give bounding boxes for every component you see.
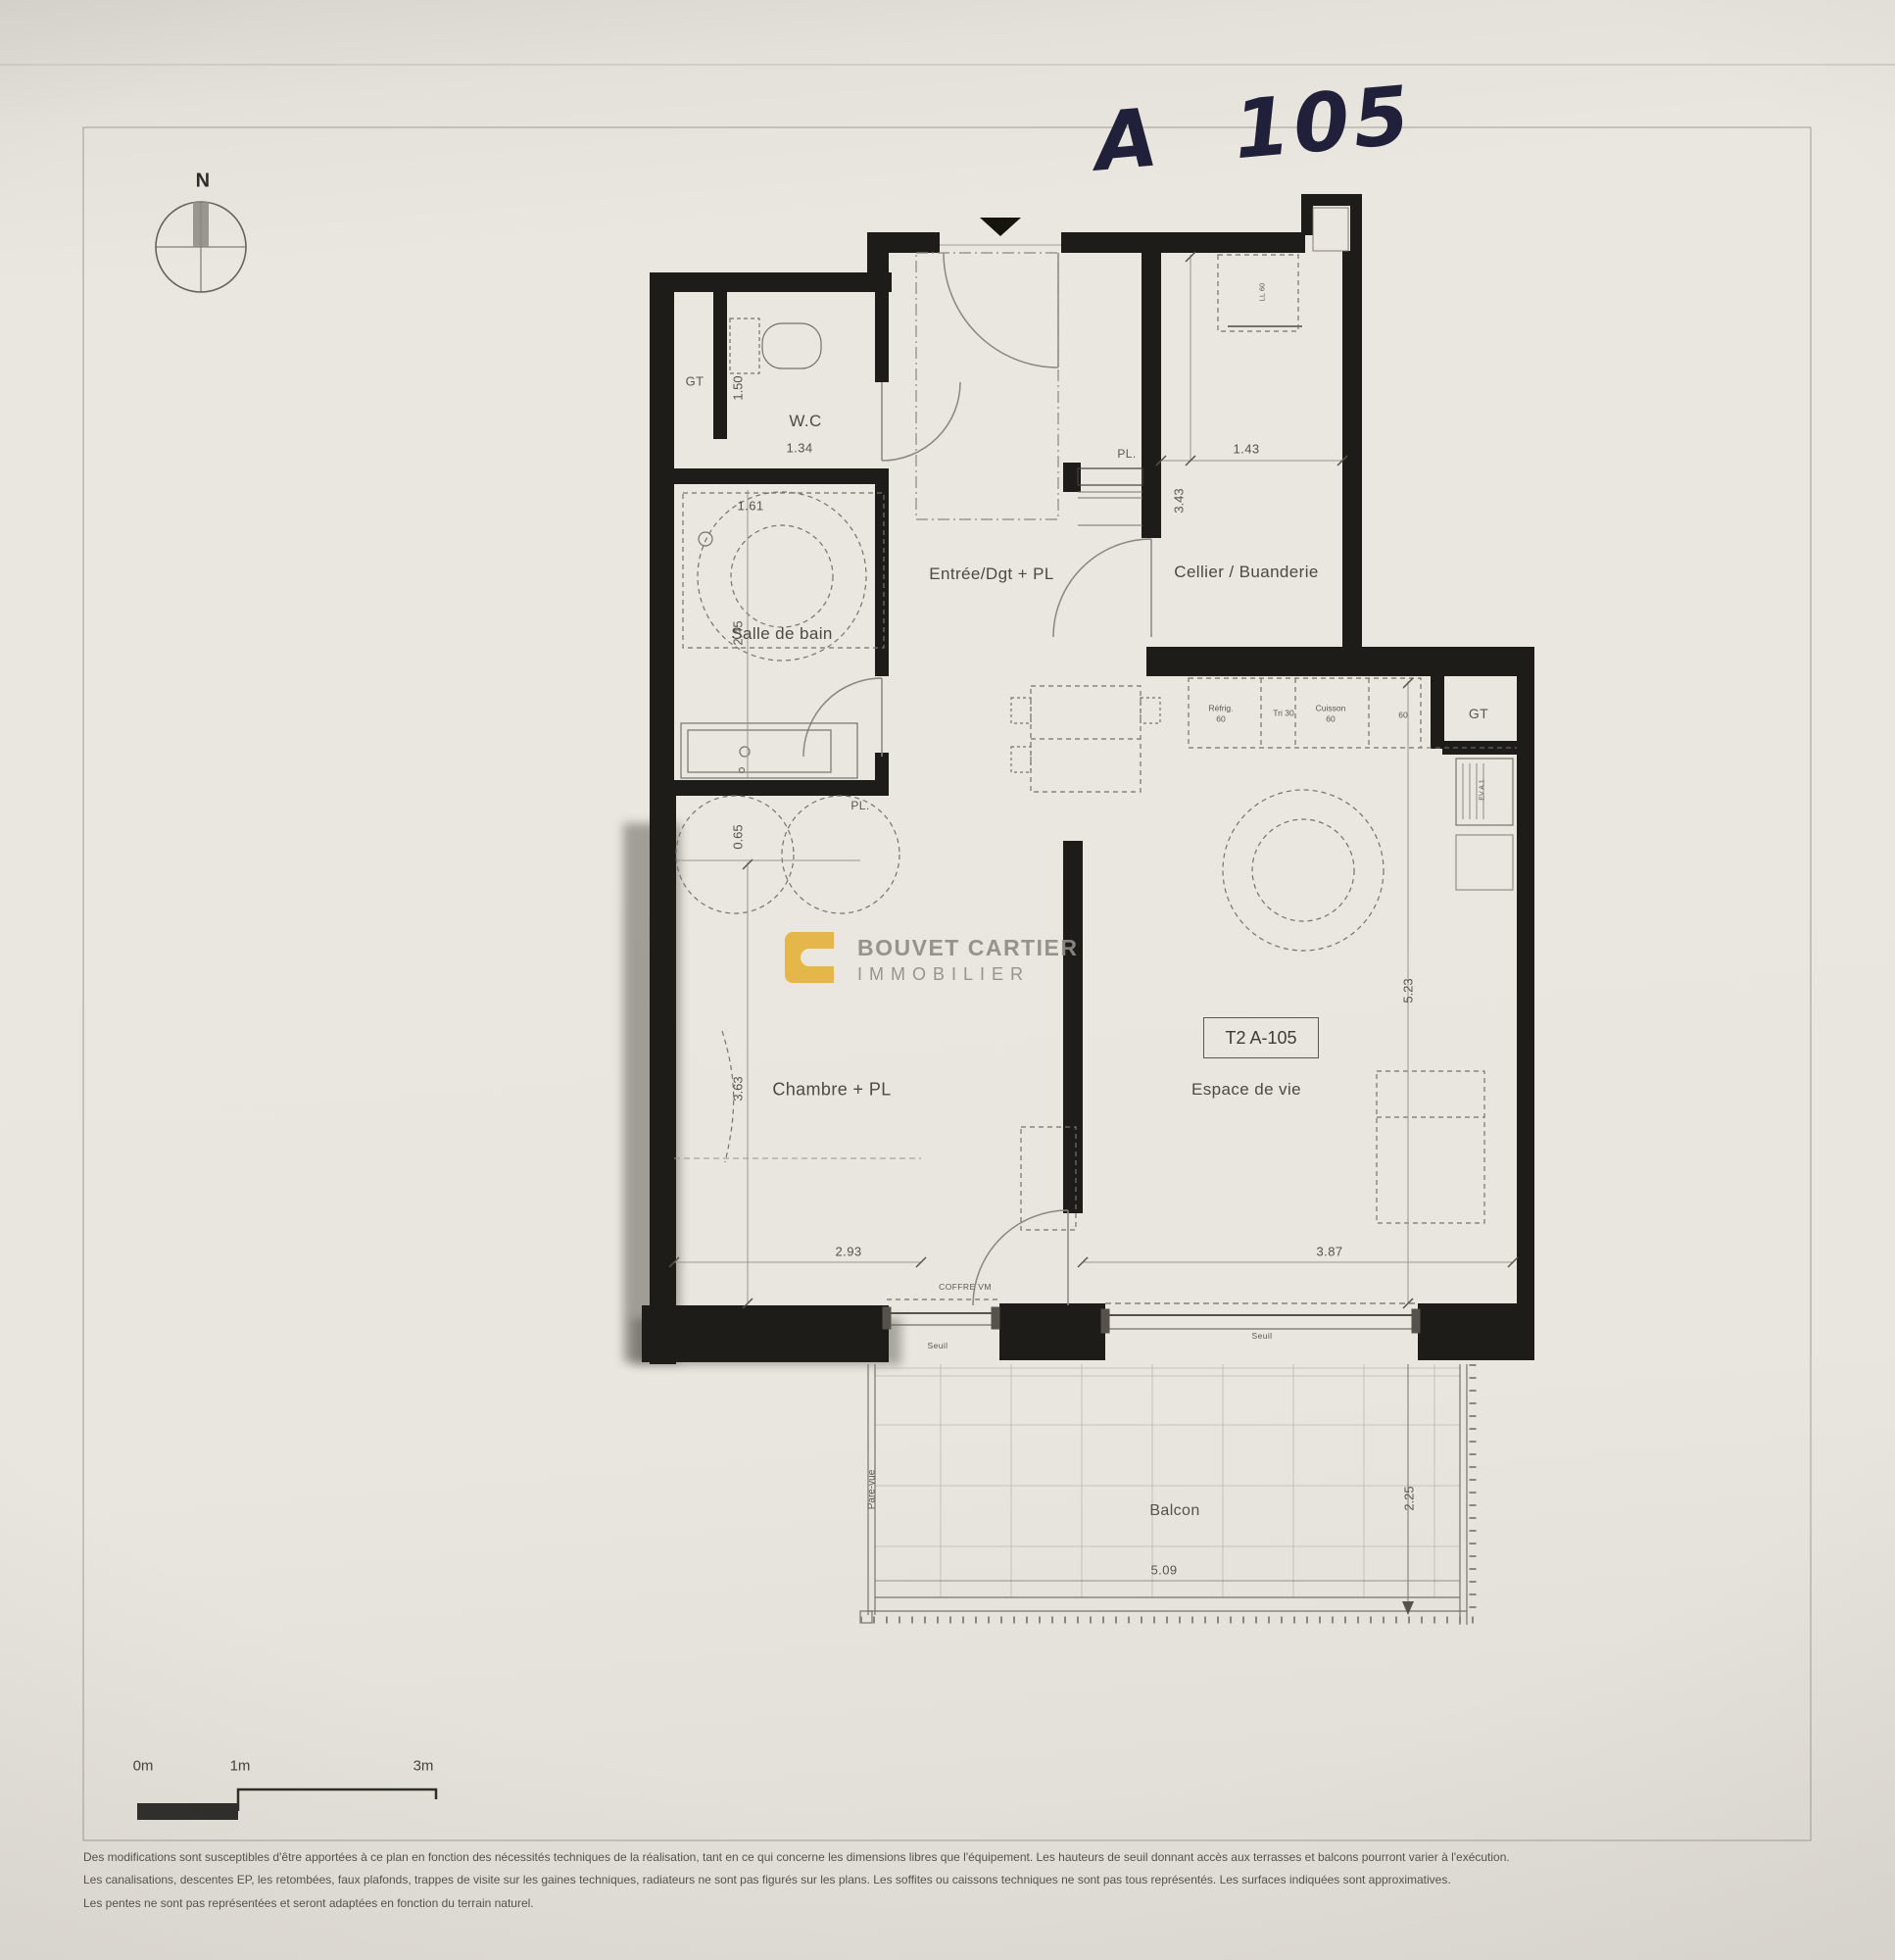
- dim-balcony-width: 5.09: [1151, 1563, 1178, 1578]
- room-label-cellar: Cellier / Buanderie: [1174, 563, 1318, 582]
- kitchen-cooking-label: Cuisson 60: [1316, 703, 1346, 723]
- kitchen-fridge-label: Réfrig. 60: [1208, 703, 1233, 723]
- seuil-living-label: Seuil: [1252, 1331, 1273, 1341]
- compass-north-label: N: [196, 171, 211, 193]
- balcony-structure: [860, 1364, 1478, 1625]
- room-label-bathroom: Salle de bain: [731, 624, 833, 644]
- entrance-arrow-icon: [980, 218, 1021, 236]
- kitchen-fridge-size: 60: [1208, 713, 1233, 724]
- disclaimer-line-3: Les pentes ne sont pas représentées et s…: [83, 1892, 1827, 1915]
- pare-vue-label: Pare-vue: [867, 1470, 878, 1510]
- kitchen-fridge-name: Réfrig.: [1208, 703, 1233, 713]
- seuil-bedroom-label: Seuil: [928, 1341, 948, 1350]
- disclaimer-text: Des modifications sont susceptibles d'êt…: [83, 1846, 1827, 1915]
- walls: [642, 194, 1534, 1364]
- agency-subtitle: IMMOBILIER: [857, 964, 1078, 985]
- scale-label-0m: 0m: [133, 1758, 154, 1775]
- kitchen-bin-label: Tri 30: [1273, 709, 1293, 719]
- windows: [883, 1299, 1420, 1333]
- scale-label-1m: 1m: [230, 1758, 251, 1775]
- gt-duct-left-label: GT: [686, 374, 705, 389]
- agency-name-block: BOUVET CARTIER IMMOBILIER: [857, 935, 1078, 985]
- entry-zone-boundary: [916, 253, 1058, 519]
- gt-duct-right-label: GT: [1469, 706, 1488, 721]
- disclaimer-line-1: Des modifications sont susceptibles d'êt…: [83, 1846, 1827, 1869]
- dim-bathroom-width: 1.61: [738, 499, 764, 514]
- dim-living-width: 3.87: [1317, 1245, 1343, 1259]
- door-swings: [803, 245, 1151, 1305]
- room-label-balcony: Balcon: [1149, 1502, 1199, 1520]
- disclaimer-line-2: Les canalisations, descentes EP, les ret…: [83, 1869, 1827, 1891]
- dim-bedroom-closet-depth: 0.65: [731, 824, 746, 849]
- dim-bedroom-width: 2.93: [836, 1245, 862, 1259]
- agency-logo-icon: [779, 926, 842, 994]
- washing-machine-label: LL 60: [1258, 283, 1267, 302]
- agency-name: BOUVET CARTIER: [857, 935, 1078, 961]
- pl-bedroom-label: PL.: [850, 799, 869, 812]
- unit-number-text: T2 A-105: [1225, 1028, 1296, 1049]
- dim-wc-depth: 1.50: [731, 375, 746, 400]
- dim-wc-width: 1.34: [787, 441, 813, 456]
- dim-living-depth: 5.23: [1401, 978, 1416, 1003]
- room-label-living: Espace de vie: [1191, 1080, 1301, 1100]
- kitchen-cooking-size: 60: [1316, 713, 1346, 724]
- scale-bar: [137, 1789, 436, 1820]
- scale-label-3m: 3m: [413, 1758, 434, 1775]
- dim-cellar-width: 1.43: [1234, 442, 1260, 457]
- room-label-entry: Entrée/Dgt + PL: [929, 564, 1053, 584]
- agency-watermark: BOUVET CARTIER IMMOBILIER: [779, 926, 1078, 994]
- kitchen-worktop-label: 60: [1398, 710, 1407, 721]
- dim-cellar-depth: 3.43: [1172, 488, 1187, 513]
- unit-number-box: T2 A-105: [1203, 1017, 1319, 1058]
- sink-unit-label: EV A.1: [1480, 779, 1486, 800]
- floor-plan-photo: A 105 N W.C Salle de bain Entrée/Dgt + P…: [0, 0, 1895, 1960]
- dim-balcony-depth: 2.25: [1402, 1486, 1417, 1510]
- compass-icon: [156, 202, 246, 292]
- dim-bathroom-depth: 2.45: [731, 620, 746, 645]
- room-label-bedroom: Chambre + PL: [772, 1080, 891, 1101]
- fixtures: [676, 208, 1517, 1230]
- pl-entry-label: PL.: [1117, 447, 1136, 461]
- kitchen-cooking-name: Cuisson: [1316, 703, 1346, 713]
- room-label-wc: W.C: [789, 412, 821, 431]
- dim-bedroom-depth: 3.63: [731, 1076, 746, 1101]
- coffre-vm-label: COFFRE VM: [939, 1282, 992, 1292]
